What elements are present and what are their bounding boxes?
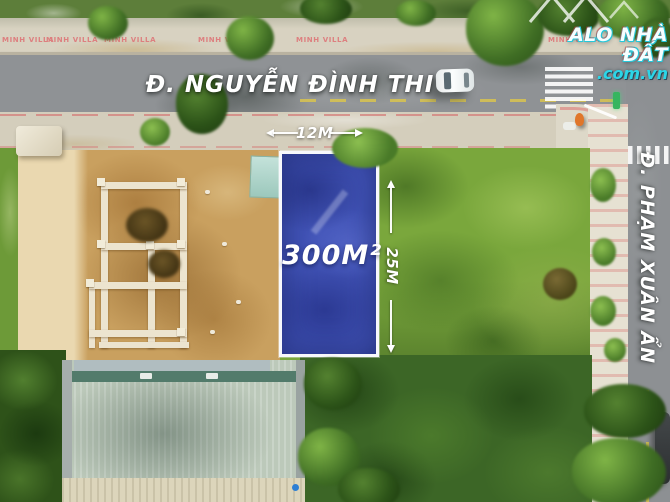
roof-vent xyxy=(206,373,218,379)
water-barrel xyxy=(292,484,299,491)
scooter xyxy=(563,122,576,130)
foundation-beam xyxy=(101,182,187,189)
street-name-vertical: Đ. PHẠM XUÂN ẨN xyxy=(634,128,658,388)
roof-section-lower xyxy=(62,478,305,502)
car-rear-window xyxy=(464,73,470,88)
frontage-line xyxy=(273,132,298,134)
depth-line xyxy=(390,300,392,346)
dry-bush xyxy=(543,268,577,300)
foundation-beam xyxy=(99,342,189,348)
depth-line xyxy=(390,187,392,233)
foundation-beam xyxy=(101,182,108,348)
metal-sheet xyxy=(249,155,282,198)
shrub xyxy=(592,238,616,266)
plot-path-mark xyxy=(311,189,349,234)
foundation-beam xyxy=(89,282,187,289)
brand-watermark: ALO NHÀ ĐẤT .com.vn xyxy=(536,26,668,83)
car xyxy=(436,68,475,92)
foundation-footing xyxy=(86,279,94,287)
foundation-footing xyxy=(177,240,185,248)
grass-edge xyxy=(0,148,20,362)
depth-arrow-down xyxy=(387,345,395,353)
tree-canopy xyxy=(572,438,666,502)
plot-area-label: 300M² xyxy=(282,240,376,271)
traffic-light-icon xyxy=(613,92,620,109)
aerial-listing-photo: MINH VILLA MINH VILLA MINH VILLA MINH VI… xyxy=(0,0,670,502)
foundation-beam xyxy=(101,243,187,250)
car-windshield xyxy=(444,72,452,89)
tree-canopy xyxy=(396,0,436,26)
depth-label: 25M xyxy=(381,236,401,296)
pedestrian xyxy=(575,113,584,126)
frontage-arrow-right xyxy=(355,129,363,137)
foundation-footing xyxy=(146,241,154,249)
tree-canopy xyxy=(226,16,274,60)
debris xyxy=(210,330,215,334)
brand-logo-mark-icon xyxy=(526,0,642,24)
plot-overlay: 300M² xyxy=(279,151,379,357)
building-roof xyxy=(62,360,305,502)
grass-field xyxy=(376,148,590,362)
tree-canopy xyxy=(88,6,128,40)
excavation-pit xyxy=(126,208,168,242)
debris xyxy=(205,190,210,194)
frontage-label: 12M xyxy=(296,124,333,142)
sidewalk-pink-line xyxy=(0,114,628,116)
tree-canopy xyxy=(304,358,362,410)
debris xyxy=(222,242,227,246)
foundation-footing xyxy=(177,328,185,336)
foundation-footing xyxy=(177,178,185,186)
foundation-beam xyxy=(180,182,187,348)
shrub xyxy=(140,118,170,146)
trees-bottom-left xyxy=(0,350,66,502)
brand-name: ALO NHÀ ĐẤT xyxy=(536,26,668,66)
brand-domain: .com.vn xyxy=(536,66,668,83)
roof-section-teal xyxy=(62,371,305,382)
street-name-horizontal: Đ. NGUYỄN ĐÌNH THI xyxy=(140,72,440,98)
roof-vent xyxy=(140,373,152,379)
foundation-footing xyxy=(97,178,105,186)
debris xyxy=(236,300,241,304)
foundation-footing xyxy=(97,240,105,248)
shrub xyxy=(332,128,398,168)
excavation-pit xyxy=(148,250,180,278)
frontage-line xyxy=(330,132,355,134)
villa-sign: MINH VILLA xyxy=(46,36,98,44)
foundation-beam xyxy=(89,282,95,348)
foundation-beam xyxy=(89,330,187,337)
villa-sign: MINH VILLA xyxy=(296,36,348,44)
shrub xyxy=(604,338,626,362)
shed xyxy=(16,126,62,156)
shrub xyxy=(590,296,616,326)
tree-canopy xyxy=(584,384,666,438)
shrub xyxy=(590,168,616,202)
